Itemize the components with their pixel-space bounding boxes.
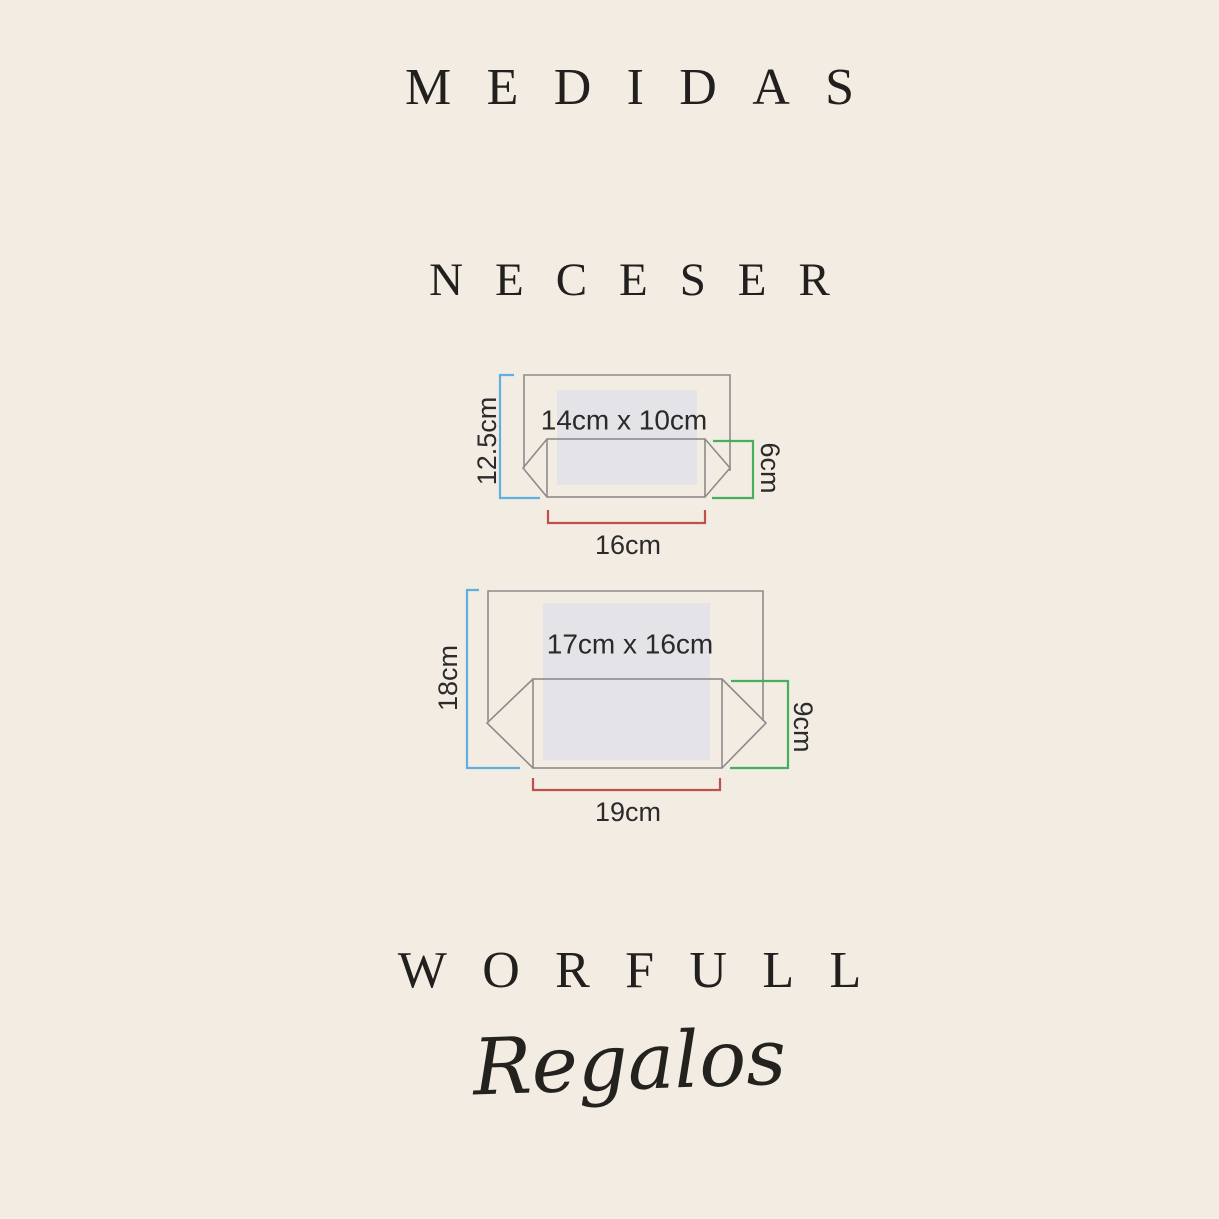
depth-label-small: 6cm [755,442,785,493]
diagram-large: 17cm x 16cm 18cm 9cm 19cm [433,590,818,827]
pouch-right-gusset-large [722,679,766,768]
depth-bracket-small [712,441,753,498]
width-label-small: 16cm [595,530,661,560]
diagram-small: 14cm x 10cm 12.5cm 6cm 16cm [472,375,785,560]
pouch-left-gusset-small [523,439,547,497]
brand-name-text: WORFULL [398,941,897,1000]
height-label-small: 12.5cm [472,397,502,486]
pouch-left-gusset-large [487,679,533,768]
height-label-large: 18cm [433,645,463,711]
height-bracket-small [500,375,540,498]
print-area-label-large: 17cm x 16cm [547,629,714,660]
width-label-large: 19cm [595,797,661,827]
print-area-label-small: 14cm x 10cm [541,405,708,436]
brand-script-text: Regalos [471,1013,787,1114]
poster: MEDIDAS NECESER 14cm x 10cm 12.5cm 6cm 1… [0,0,1219,1219]
depth-bracket-large [730,681,788,768]
pouch-right-gusset-small [705,439,730,497]
print-area-large [543,603,710,760]
depth-label-large: 9cm [788,701,818,752]
width-bracket-small [548,510,705,523]
width-bracket-large [533,778,720,790]
height-bracket-large [467,590,520,768]
